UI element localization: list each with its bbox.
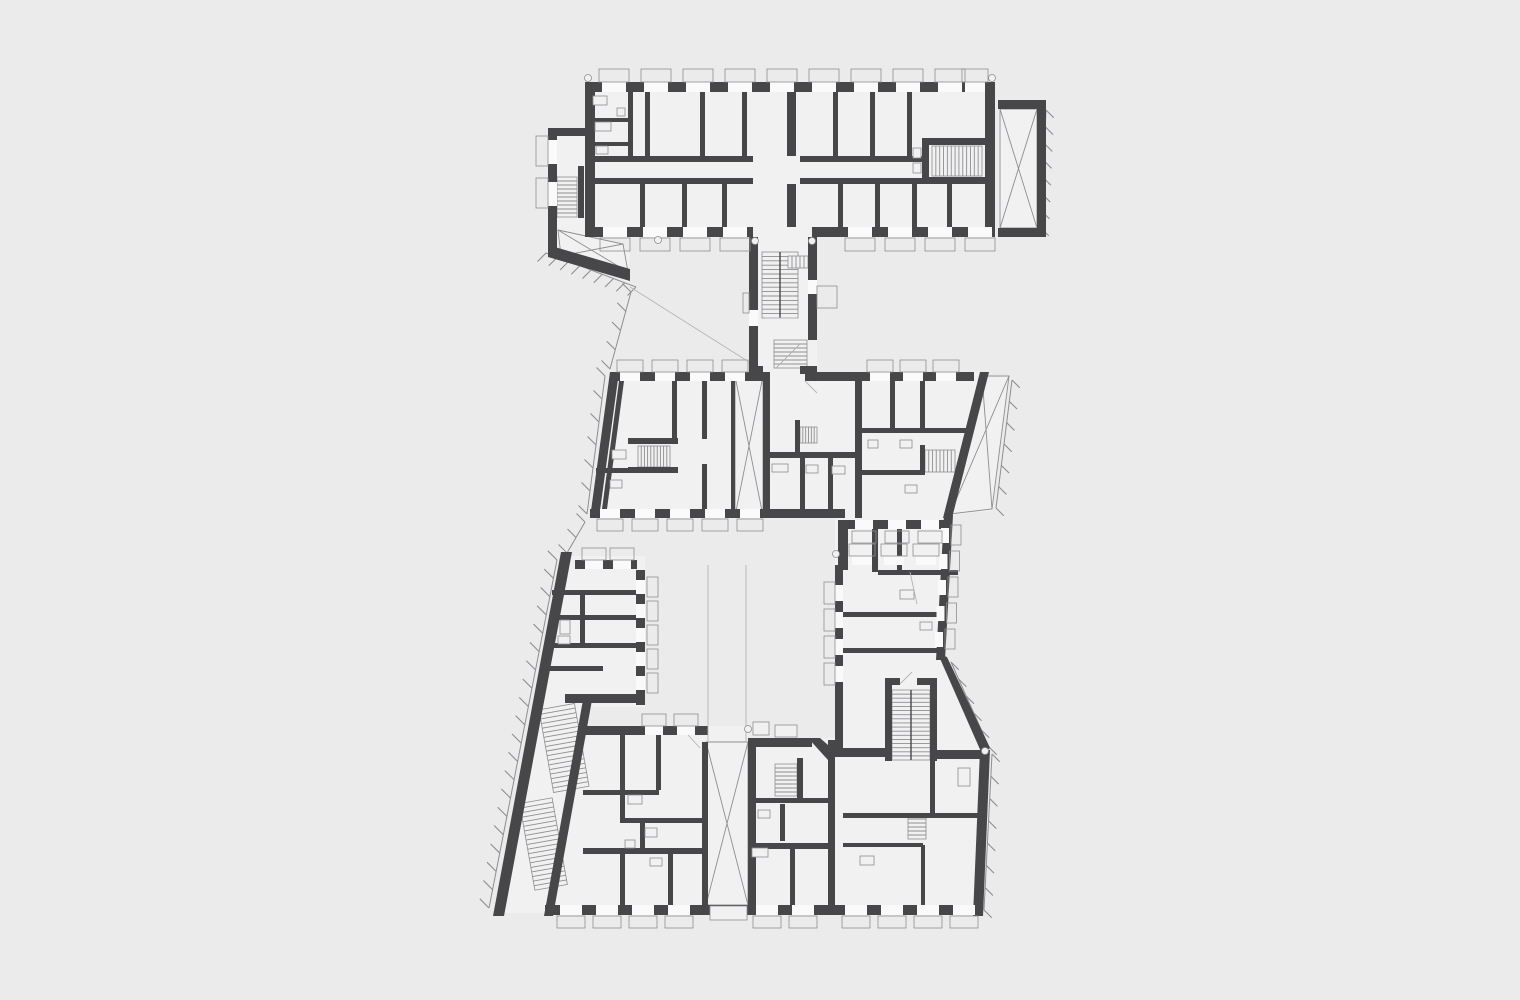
wall [929,138,985,145]
window-gap [937,606,945,621]
window-gap [935,632,943,647]
wall [583,790,659,795]
wall [937,750,984,759]
wall [922,138,929,184]
stair [892,690,930,760]
fixture [710,906,747,920]
column-marker [989,75,996,82]
wall [580,593,585,645]
wall [620,735,625,819]
fixture [617,108,625,116]
stair [775,764,797,796]
fixture [595,122,611,131]
wall [787,92,796,156]
wall [800,458,805,509]
window-gap [928,227,952,237]
window-gap [548,140,557,164]
wall [593,118,628,122]
window-gap [670,509,690,518]
wall [748,738,812,747]
window-gap [953,905,975,915]
fixture [628,795,642,804]
wall [780,804,785,841]
wall [565,694,640,703]
wall [702,742,708,905]
column-marker [833,551,840,558]
window-gap [740,509,760,518]
fixture [753,722,769,735]
floor-plan-page [0,0,1520,1000]
wall [800,178,929,184]
fixture [593,96,607,105]
window-gap [884,556,904,565]
wall [920,381,925,428]
wall [578,166,584,218]
window-gap [917,905,939,915]
wall [756,798,835,803]
wall [593,156,753,162]
wall [700,92,705,156]
wall [763,452,858,458]
fixture [868,440,878,448]
window-gap [636,604,645,618]
wall [640,184,645,227]
fixture [958,768,970,786]
wall [543,666,603,671]
window-gap [848,227,872,237]
wall [875,184,880,227]
fixture [920,622,932,630]
floor-plan-canvas [0,0,1520,1000]
wall [862,470,924,475]
fixture [610,480,622,488]
window-gap [936,372,956,381]
window-gap [705,509,725,518]
window-gap [968,227,992,237]
wall [930,757,935,813]
floor-area [590,372,989,518]
window-gap [835,666,843,682]
window-gap [852,556,872,565]
window-gap [770,82,794,92]
wall [838,520,848,570]
column-marker [655,237,662,244]
fixture [772,464,788,472]
wall [672,381,677,443]
wall [628,438,678,444]
window-gap [965,82,985,92]
fixture [758,810,770,818]
wall [749,237,758,372]
wall [929,177,985,184]
wall [800,156,929,162]
window-gap [677,726,695,735]
column-marker [809,238,816,245]
window-gap [620,372,640,381]
wall [795,420,800,454]
window-gap [636,628,645,642]
window-gap [723,227,747,237]
window-gap [613,560,631,569]
wall [702,381,707,439]
window-gap [603,227,627,237]
fixture [775,725,797,737]
window-gap [602,82,626,92]
wall [921,845,925,905]
column-marker [982,748,989,755]
wall [640,823,645,850]
window-gap [668,905,690,915]
window-gap [881,905,903,915]
wall [797,758,803,798]
fixture [832,466,845,474]
wall [668,852,673,905]
wall [843,648,938,653]
window-gap [635,509,655,518]
wall [645,92,650,156]
wall [862,428,967,433]
window-gap [636,652,645,666]
window-gap [600,509,620,518]
stair [638,446,670,467]
window-gap [808,280,817,294]
wall [763,372,770,518]
wall [787,184,796,227]
fixture [806,465,818,473]
fixture [900,590,914,599]
wall [742,92,747,156]
window-gap [632,905,654,915]
wall [620,818,708,823]
window-gap [916,556,936,565]
column-marker [752,238,759,245]
window-gap [903,372,923,381]
stair [557,177,577,217]
window-gap [683,227,707,237]
window-gap [845,905,867,915]
wall [920,445,925,475]
window-gap [655,372,675,381]
wall [870,92,875,156]
fixture [612,450,626,459]
window-gap [644,82,668,92]
wall [843,813,983,818]
wall [682,184,687,227]
fixture [900,440,912,448]
window-gap [690,372,710,381]
wall [593,178,753,184]
wall [656,735,661,790]
window-gap [835,639,843,655]
wall [835,748,887,757]
window-gap [636,676,645,690]
window-gap [686,82,710,92]
stair [788,256,808,268]
window-gap [855,520,873,529]
fixture [596,146,608,154]
wall [549,615,637,620]
wall [628,92,633,156]
fixture [645,828,657,837]
wall [930,683,937,761]
fixture [905,485,917,493]
window-gap [585,560,603,569]
wall [583,848,708,854]
fixture [650,858,662,866]
fixture [752,848,768,857]
wall [805,372,862,381]
stair [925,450,955,472]
column-marker [585,75,592,82]
stair [800,427,817,443]
wall [890,381,895,428]
window-gap [921,520,939,529]
stair [908,815,926,839]
window-gap [896,82,920,92]
wall [838,184,843,227]
wall [912,184,917,227]
wall [843,843,923,847]
fixture [913,148,921,158]
wall [828,740,835,915]
window-gap [749,310,758,326]
stair [932,146,982,176]
window-gap [643,227,667,237]
window-gap [938,580,946,595]
wall [790,849,795,905]
window-gap [812,82,836,92]
wall [907,92,912,156]
wall [593,142,628,146]
fixture [558,636,570,644]
window-gap [888,227,912,237]
window-gap [835,585,843,601]
wall [763,509,845,518]
fixture [625,840,635,848]
wall [585,92,595,237]
wall [833,92,838,156]
window-gap [596,905,618,915]
stair-outline [788,256,808,268]
window-gap [940,554,948,569]
window-gap [938,82,962,92]
window-gap [636,580,645,594]
column-marker [745,726,752,733]
window-gap [756,905,778,915]
window-gap [645,726,663,735]
window-gap [792,905,814,915]
wall [722,184,727,227]
window-gap [888,520,906,529]
fixture [860,856,874,865]
wall [748,747,756,915]
window-gap [835,612,843,628]
wall [985,92,995,237]
wall [731,376,735,516]
wall [947,184,952,227]
wall [548,128,590,136]
wall [620,852,625,905]
window-gap [560,905,582,915]
wall [1037,100,1046,237]
window-gap [725,372,745,381]
fixture [560,620,570,634]
wall [917,678,937,685]
fixture [913,163,921,173]
window-gap [728,82,752,92]
window-gap [548,182,557,206]
wall [843,612,941,617]
wall [855,372,862,518]
window-gap [854,82,878,92]
window-gap [870,372,890,381]
wall [885,678,900,685]
